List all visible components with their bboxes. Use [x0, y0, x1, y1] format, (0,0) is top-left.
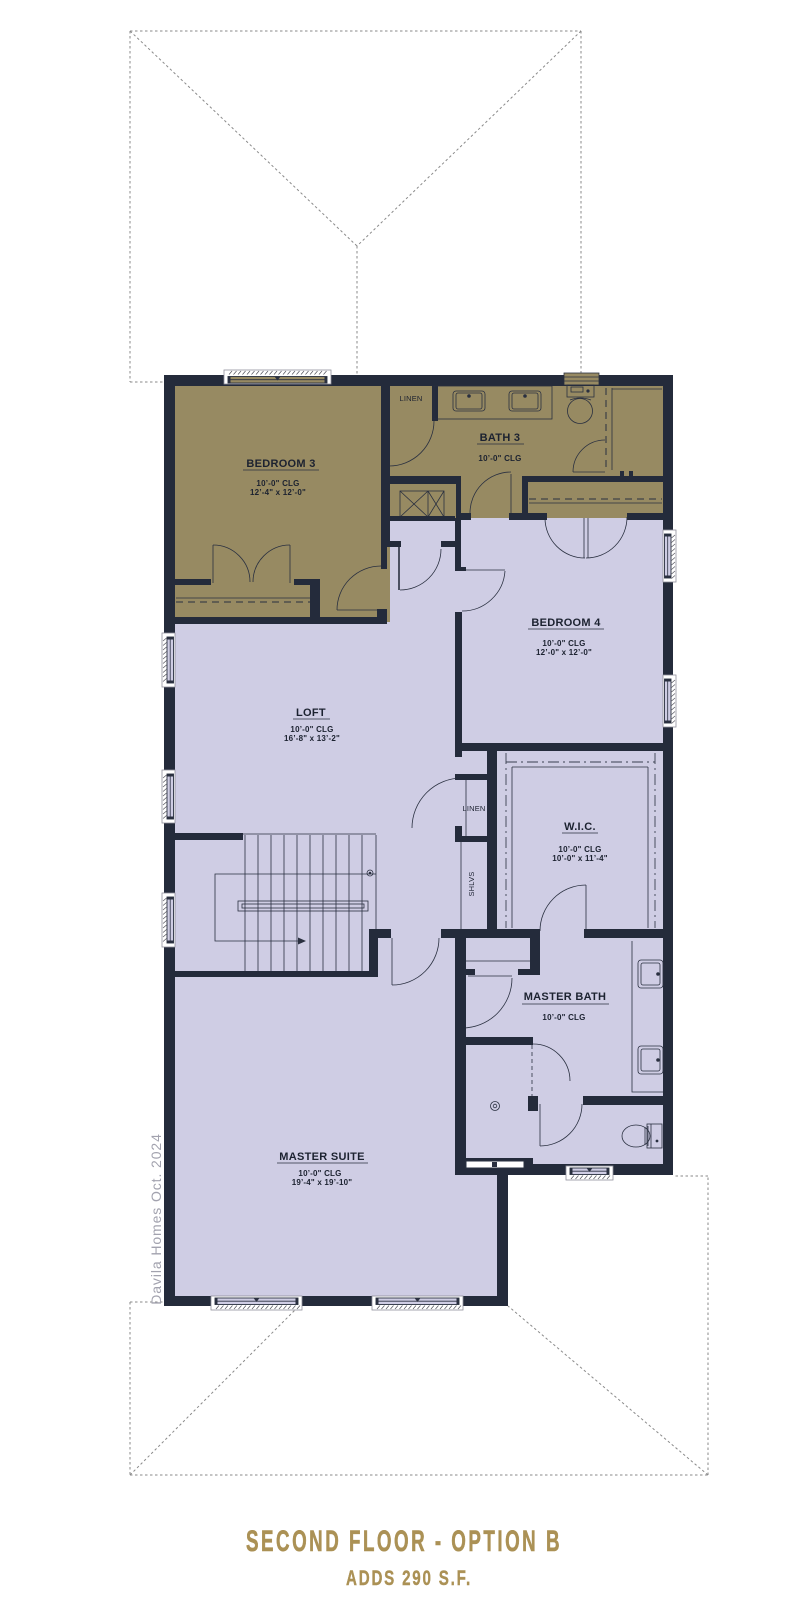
- svg-text:10’-0" CLG: 10’-0" CLG: [558, 845, 601, 854]
- svg-text:MASTER BATH: MASTER BATH: [524, 991, 607, 1003]
- svg-text:16’-8" x 13’-2": 16’-8" x 13’-2": [284, 734, 340, 743]
- svg-text:10’-0" CLG: 10’-0" CLG: [256, 479, 299, 488]
- svg-text:BEDROOM 3: BEDROOM 3: [246, 458, 315, 470]
- svg-text:Davila Homes Oct. 2024: Davila Homes Oct. 2024: [148, 1133, 164, 1305]
- svg-text:BATH 3: BATH 3: [480, 432, 521, 444]
- svg-text:10’-0" CLG: 10’-0" CLG: [478, 454, 521, 463]
- svg-text:12’-0" x 12’-0": 12’-0" x 12’-0": [536, 648, 592, 657]
- svg-text:SECOND FLOOR - OPTION B: SECOND FLOOR - OPTION B: [246, 1525, 562, 1558]
- svg-text:LINEN: LINEN: [462, 804, 485, 813]
- svg-text:10’-0" CLG: 10’-0" CLG: [290, 725, 333, 734]
- svg-text:10’-0" x 11’-4": 10’-0" x 11’-4": [552, 854, 608, 863]
- svg-text:SHLVS: SHLVS: [467, 871, 476, 896]
- svg-text:10’-0" CLG: 10’-0" CLG: [298, 1169, 341, 1178]
- svg-text:BEDROOM 4: BEDROOM 4: [531, 617, 601, 629]
- svg-text:10’-0" CLG: 10’-0" CLG: [542, 1013, 585, 1022]
- svg-text:W.I.C.: W.I.C.: [564, 821, 596, 833]
- svg-text:ADDS 290 S.F.: ADDS 290 S.F.: [346, 1567, 472, 1590]
- svg-text:19’-4" x 19’-10": 19’-4" x 19’-10": [292, 1178, 353, 1187]
- svg-text:LOFT: LOFT: [296, 707, 326, 719]
- svg-text:MASTER SUITE: MASTER SUITE: [279, 1151, 365, 1163]
- svg-text:12’-4" x 12’-0": 12’-4" x 12’-0": [250, 488, 306, 497]
- svg-text:10’-0" CLG: 10’-0" CLG: [542, 639, 585, 648]
- svg-text:LINEN: LINEN: [399, 394, 422, 403]
